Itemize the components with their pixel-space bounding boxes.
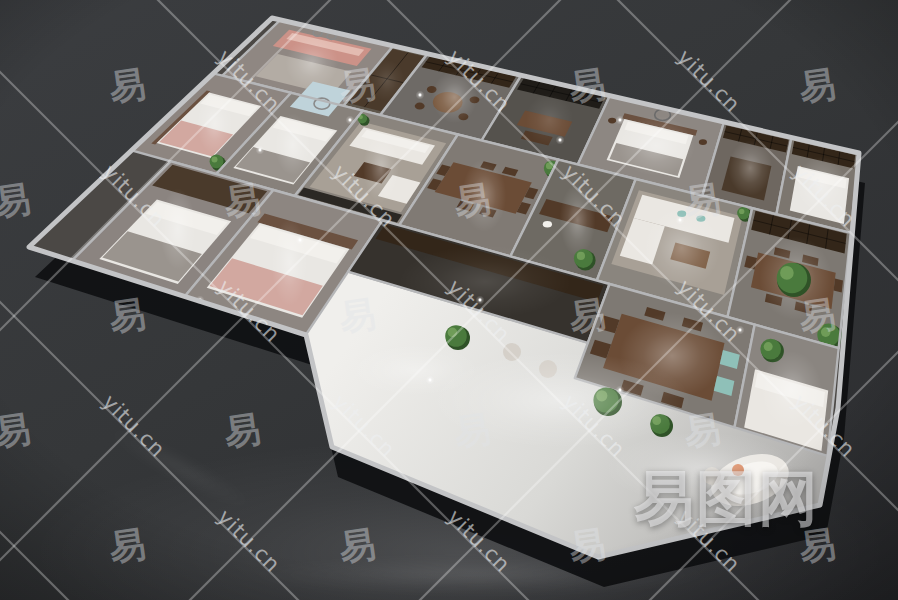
watermark-char: 易	[566, 523, 608, 569]
watermark-char: 易	[106, 63, 148, 109]
watermark-char: 易	[566, 293, 608, 339]
watermark-char: 易	[336, 293, 378, 339]
watermark-char: 易	[451, 178, 493, 224]
watermark-char: 易	[336, 63, 378, 109]
watermark-char: 易	[221, 178, 263, 224]
floorplan-render: yitu.cnyitu.cnyitu.cn易易易易yitu.cnyitu.cny…	[0, 0, 898, 600]
watermark-char: 易	[566, 63, 608, 109]
watermark-char: 易	[451, 408, 493, 454]
watermark-char: 易	[681, 408, 723, 454]
watermark-char: 易	[681, 178, 723, 224]
render-canvas: yitu.cnyitu.cnyitu.cn易易易易yitu.cnyitu.cny…	[0, 0, 898, 600]
watermark-char: 易	[796, 523, 838, 569]
watermark-char: 易	[796, 63, 838, 109]
watermark-char: 易	[0, 408, 33, 454]
watermark-char: 易	[0, 178, 33, 224]
watermark-char: 易	[106, 293, 148, 339]
watermark-char: 易	[336, 523, 378, 569]
watermark-char: 易	[796, 293, 838, 339]
watermark-char: 易	[106, 523, 148, 569]
watermark-char: 易	[221, 408, 263, 454]
